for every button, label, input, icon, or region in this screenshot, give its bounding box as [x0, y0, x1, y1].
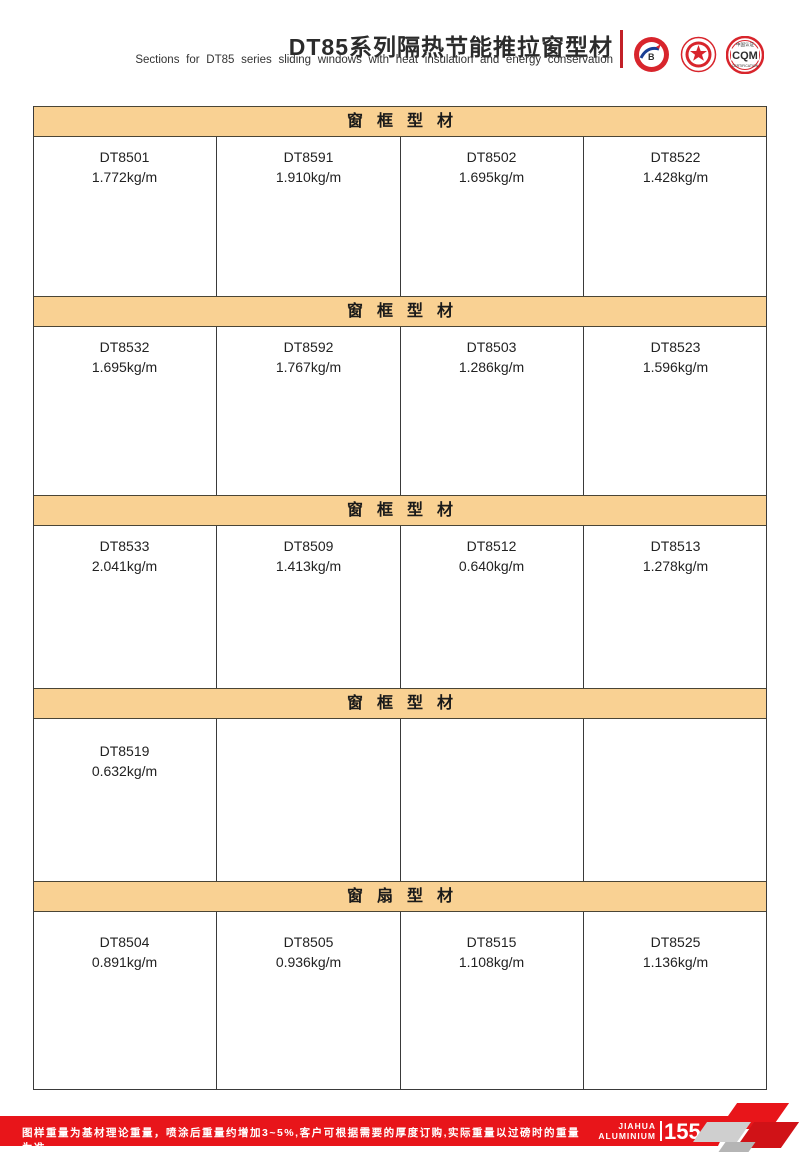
svg-text:CQM: CQM: [732, 50, 758, 62]
svg-text:中国认证: 中国认证: [736, 41, 754, 48]
svg-text:B: B: [648, 52, 655, 62]
svg-text:CERTIFICATION: CERTIFICATION: [732, 64, 759, 68]
